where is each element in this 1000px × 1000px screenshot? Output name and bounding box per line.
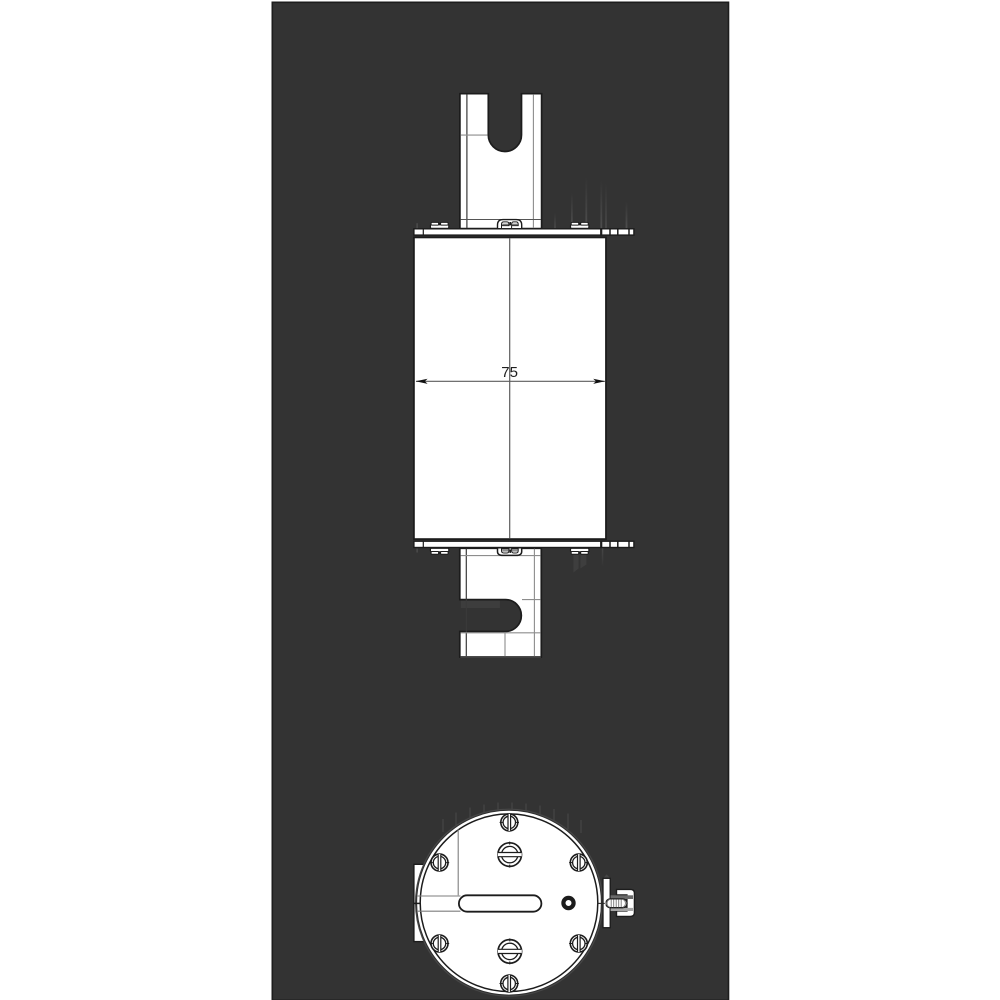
svg-text:75: 75 (501, 364, 518, 381)
